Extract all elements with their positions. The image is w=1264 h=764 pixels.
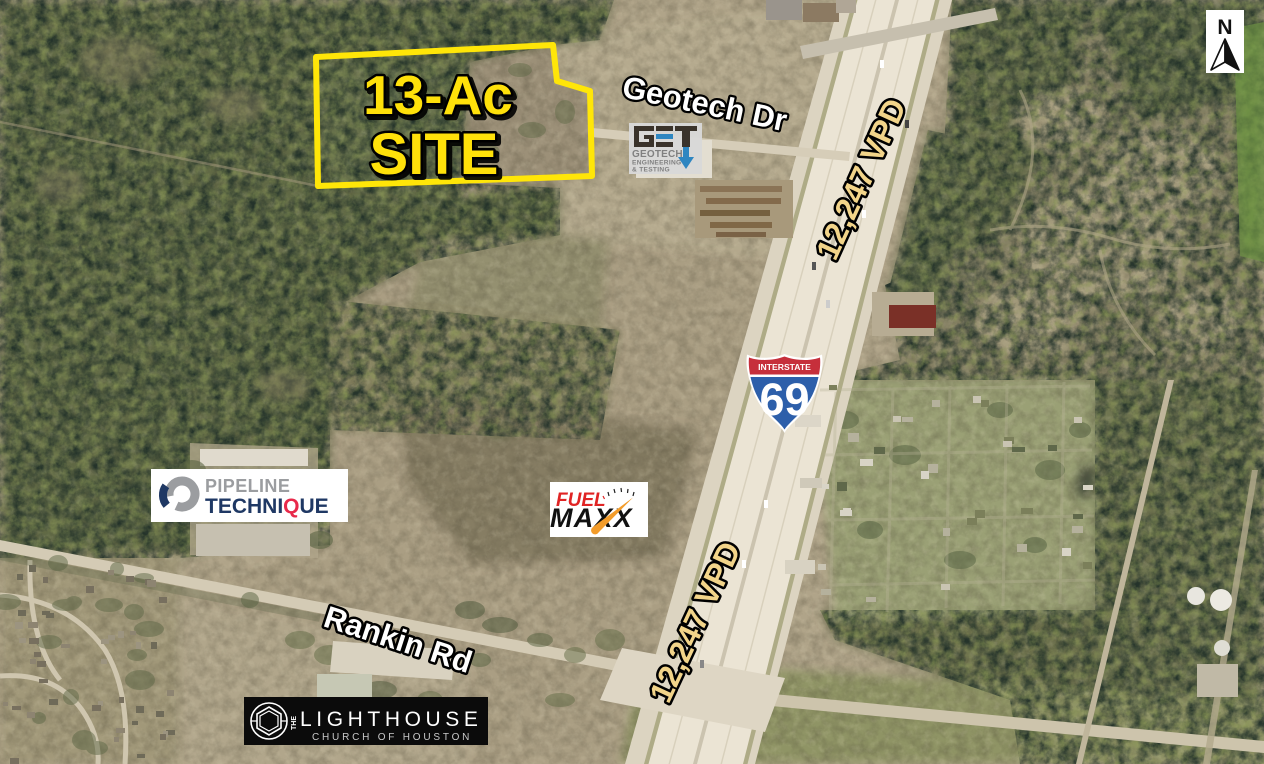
svg-text:ENGINEERING: ENGINEERING xyxy=(632,160,681,167)
svg-text:LIGHTHOUSE: LIGHTHOUSE xyxy=(300,708,483,731)
svg-text:CHURCH OF HOUSTON: CHURCH OF HOUSTON xyxy=(312,732,472,743)
svg-text:GEOTECH: GEOTECH xyxy=(632,149,683,160)
svg-text:THE: THE xyxy=(291,716,298,730)
svg-text:PIPELINE: PIPELINE xyxy=(205,476,290,496)
svg-text:SITE: SITE xyxy=(370,122,499,187)
svg-text:INTERSTATE: INTERSTATE xyxy=(758,362,811,372)
svg-text:69: 69 xyxy=(759,374,809,425)
svg-text:TECHNIQUE: TECHNIQUE xyxy=(205,495,329,518)
svg-text:13-Ac: 13-Ac xyxy=(363,64,513,126)
svg-text:N: N xyxy=(1217,16,1232,39)
svg-text:& TESTING: & TESTING xyxy=(632,167,670,174)
